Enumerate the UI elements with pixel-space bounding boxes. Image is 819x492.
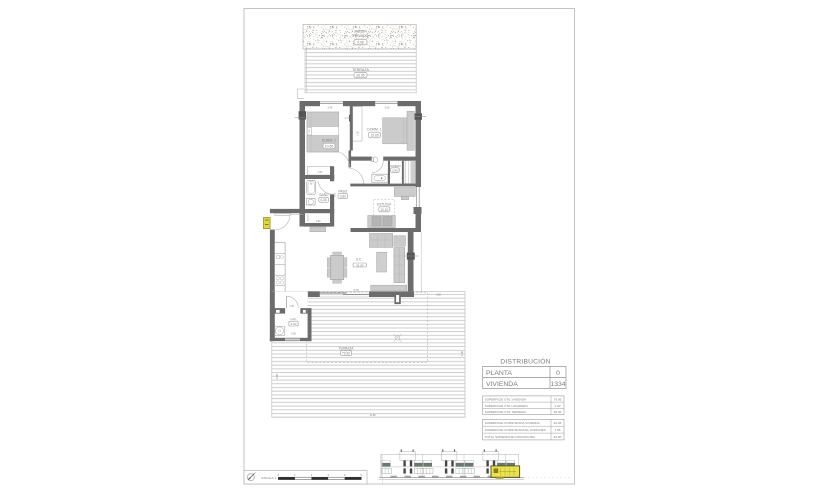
svg-text:DORM. 1: DORM. 1 <box>367 127 381 131</box>
svg-text:0.90: 0.90 <box>291 333 296 336</box>
svg-text:11.98: 11.98 <box>369 414 376 417</box>
svg-text:SUPERFICIE ÚTIL TERRAZA: SUPERFICIE ÚTIL TERRAZA <box>485 410 527 414</box>
svg-text:1.02: 1.02 <box>357 131 360 136</box>
svg-text:79.95: 79.95 <box>554 398 562 402</box>
svg-text:SUPERFICIE CONSTRUIDA EL.COMUN: SUPERFICIE CONSTRUIDA EL.COMUNES <box>485 428 546 432</box>
svg-text:PASO: PASO <box>338 190 347 194</box>
svg-text:JARDIN: JARDIN <box>354 30 367 34</box>
svg-text:ESTUDIO: ESTUDIO <box>377 203 392 207</box>
svg-text:9.08: 9.08 <box>357 41 364 45</box>
svg-text:TOTAL SUPERFICIE CONSTRUIDA: TOTAL SUPERFICIE CONSTRUIDA <box>485 435 536 439</box>
svg-text:SUPERFICIE CONSTRUIDA VIVIENDA: SUPERFICIE CONSTRUIDA VIVIENDA <box>485 421 541 425</box>
svg-text:1.05: 1.05 <box>317 171 322 174</box>
svg-text:94.60: 94.60 <box>554 435 562 439</box>
svg-text:DORM. 2: DORM. 2 <box>322 138 336 142</box>
svg-text:2.45: 2.45 <box>328 106 333 109</box>
svg-text:TERRAZA: TERRAZA <box>339 346 355 350</box>
svg-text:79.30: 79.30 <box>342 352 350 356</box>
svg-text:ESCALA 1:: ESCALA 1: <box>262 476 278 480</box>
svg-text:1.46: 1.46 <box>289 305 294 308</box>
svg-text:26.95: 26.95 <box>356 74 365 78</box>
svg-text:10.10: 10.10 <box>380 208 388 212</box>
svg-text:4.30: 4.30 <box>320 198 326 202</box>
svg-text:SUPERFICIE ÚTIL VIVIENDA: SUPERFICIE ÚTIL VIVIENDA <box>485 398 527 402</box>
svg-text:PLANTA: PLANTA <box>486 370 512 377</box>
svg-text:3.80: 3.80 <box>340 195 346 199</box>
svg-text:2.80: 2.80 <box>392 169 398 173</box>
svg-text:S.C.: S.C. <box>356 257 362 261</box>
svg-text:1334: 1334 <box>550 381 565 388</box>
svg-text:TERRAZA: TERRAZA <box>352 68 369 72</box>
svg-text:3.08: 3.08 <box>276 374 279 379</box>
svg-text:2.90: 2.90 <box>385 106 390 109</box>
svg-text:1.98: 1.98 <box>461 351 464 356</box>
svg-text:SUPERFICIE ÚTIL LAVADERO: SUPERFICIE ÚTIL LAVADERO <box>485 404 529 408</box>
svg-text:0: 0 <box>556 370 560 377</box>
svg-text:2.90: 2.90 <box>554 404 560 408</box>
svg-text:ROPERO: ROPERO <box>389 164 401 168</box>
svg-text:1.65: 1.65 <box>554 428 560 432</box>
svg-text:1.90: 1.90 <box>316 220 321 223</box>
svg-text:VIVIENDA: VIVIENDA <box>486 381 518 388</box>
svg-text:92.95: 92.95 <box>554 421 562 425</box>
svg-text:2.90: 2.90 <box>291 322 297 326</box>
svg-text:6.90: 6.90 <box>436 293 441 296</box>
svg-text:95.40: 95.40 <box>554 410 562 414</box>
svg-text:10.65: 10.65 <box>325 145 334 149</box>
svg-text:DISTRIBUCIÓN: DISTRIBUCIÓN <box>500 357 550 366</box>
svg-text:5.70: 5.70 <box>354 289 359 292</box>
svg-text:31.50: 31.50 <box>356 263 364 267</box>
svg-text:LAV.: LAV. <box>290 317 296 321</box>
svg-text:PRIVADO: PRIVADO <box>353 34 369 38</box>
svg-text:13.65: 13.65 <box>370 134 379 138</box>
